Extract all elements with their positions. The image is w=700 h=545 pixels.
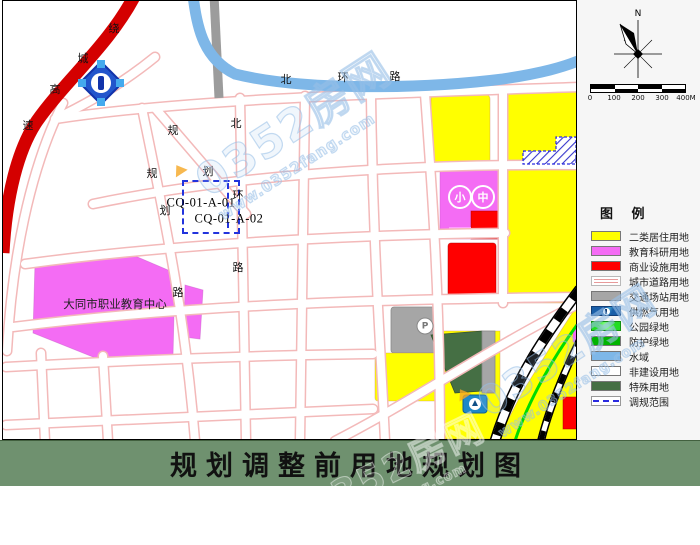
legend-item: 商业设施用地	[591, 260, 689, 272]
legend-item: 水域	[591, 350, 649, 362]
legend-swatch-solid	[591, 261, 621, 271]
scale-segment	[662, 85, 686, 92]
legend-label: 公园绿地	[629, 319, 669, 334]
road-name-char: 北	[231, 115, 242, 131]
commercial-block	[448, 243, 496, 299]
parcel-code: CQ-01-A-01	[167, 196, 236, 211]
residential-block	[500, 169, 576, 303]
legend-item: 二类居住用地	[591, 230, 689, 242]
legend-swatch-solid	[591, 381, 621, 391]
scale-tick-label: 300	[655, 94, 668, 102]
side-panel: N 0100200300400M 图 例 二类居住用地教育科研用地商业设施用地城…	[577, 0, 700, 440]
road-name-char: 划	[160, 202, 171, 218]
legend-item: 交通场站用地	[591, 290, 689, 302]
scale-bar-segments	[590, 84, 686, 93]
legend-item: 防护绿地	[591, 335, 669, 347]
transport-strip	[482, 331, 495, 393]
legend-label: 供燃气用地	[629, 304, 679, 319]
legend-swatch-gas	[591, 306, 621, 316]
road-name-char: 规	[147, 165, 158, 181]
scale-segment	[638, 85, 662, 92]
legend-swatch-park	[591, 321, 621, 331]
parking-marker: P	[417, 318, 434, 335]
gas-facility-icon-2	[463, 395, 487, 413]
legend-label: 交通场站用地	[629, 289, 689, 304]
legend-label: 非建设用地	[629, 364, 679, 379]
road-name-char: 速	[23, 117, 34, 133]
scale-tick-label: 0	[588, 94, 592, 102]
road-name-char: 路	[233, 259, 244, 275]
legend-item: 非建设用地	[591, 365, 679, 377]
road-name-char: 路	[390, 68, 401, 84]
scale-tick-label: 100	[607, 94, 620, 102]
scale-tick-label: 200	[631, 94, 644, 102]
scale-tick-label: 400M	[676, 94, 695, 102]
gray-road	[214, 1, 219, 98]
road-name-char: 环	[338, 69, 349, 85]
legend-label: 调规范围	[629, 394, 669, 409]
scale-bar-labels: 0100200300400M	[590, 94, 686, 104]
scale-segment	[615, 85, 639, 92]
legend-label: 特殊用地	[629, 379, 669, 394]
commercial-block	[563, 397, 576, 429]
legend-swatch-solid	[591, 231, 621, 241]
planning-map-page: { "title_bar": { "text": "规划调整前用地规划图" },…	[0, 0, 700, 485]
legend-swatch-solid	[591, 336, 621, 346]
scale-segment	[591, 85, 615, 92]
road-name-char: 环	[233, 187, 244, 203]
legend-swatch-solid	[591, 351, 621, 361]
legend-swatch-dashed	[591, 396, 621, 406]
legend-item: 特殊用地	[591, 380, 669, 392]
road-name-char: 绕	[109, 20, 120, 36]
road-name-char: 路	[173, 284, 184, 300]
legend-swatch-road	[591, 276, 621, 286]
title-bar: 规划调整前用地规划图	[0, 440, 700, 486]
site-label: 大同市职业教育中心	[63, 296, 167, 312]
legend-label: 城市道路用地	[629, 274, 689, 289]
school-marker: 中	[471, 185, 495, 209]
legend-swatch-solid	[591, 291, 621, 301]
compass-rose: N	[610, 6, 666, 80]
road-name-char: 高	[50, 81, 61, 97]
road-name-char: 划	[203, 163, 214, 179]
road-name-char: 城	[78, 50, 89, 66]
school-marker: 小	[448, 185, 472, 209]
legend-item: 教育科研用地	[591, 245, 689, 257]
scale-bar: 0100200300400M	[590, 84, 686, 104]
parcel-code: CQ-01-A-02	[195, 212, 264, 227]
map-canvas	[3, 1, 576, 439]
road-name-char: 北	[281, 71, 292, 87]
legend-label: 水域	[629, 349, 649, 364]
map-title: 规划调整前用地规划图	[170, 444, 530, 483]
legend-label: 防护绿地	[629, 334, 669, 349]
legend-item: 调规范围	[591, 395, 669, 407]
legend-item: 城市道路用地	[591, 275, 689, 287]
legend-swatch-solid	[591, 366, 621, 376]
north-letter: N	[635, 9, 642, 19]
residential-block	[431, 94, 490, 166]
legend-item: 供燃气用地	[591, 305, 679, 317]
road-name-char: 规	[168, 122, 179, 138]
legend-swatch-solid	[591, 246, 621, 256]
legend-label: 二类居住用地	[629, 229, 689, 244]
legend-label: 教育科研用地	[629, 244, 689, 259]
river	[193, 1, 576, 87]
planning-map: 大同市职业教育中心 CQ-01-A-01CQ-01-A-02 绕城高速北环路规划…	[2, 0, 577, 440]
legend-item: 公园绿地	[591, 320, 669, 332]
legend-label: 商业设施用地	[629, 259, 689, 274]
legend-title: 图 例	[600, 203, 652, 222]
